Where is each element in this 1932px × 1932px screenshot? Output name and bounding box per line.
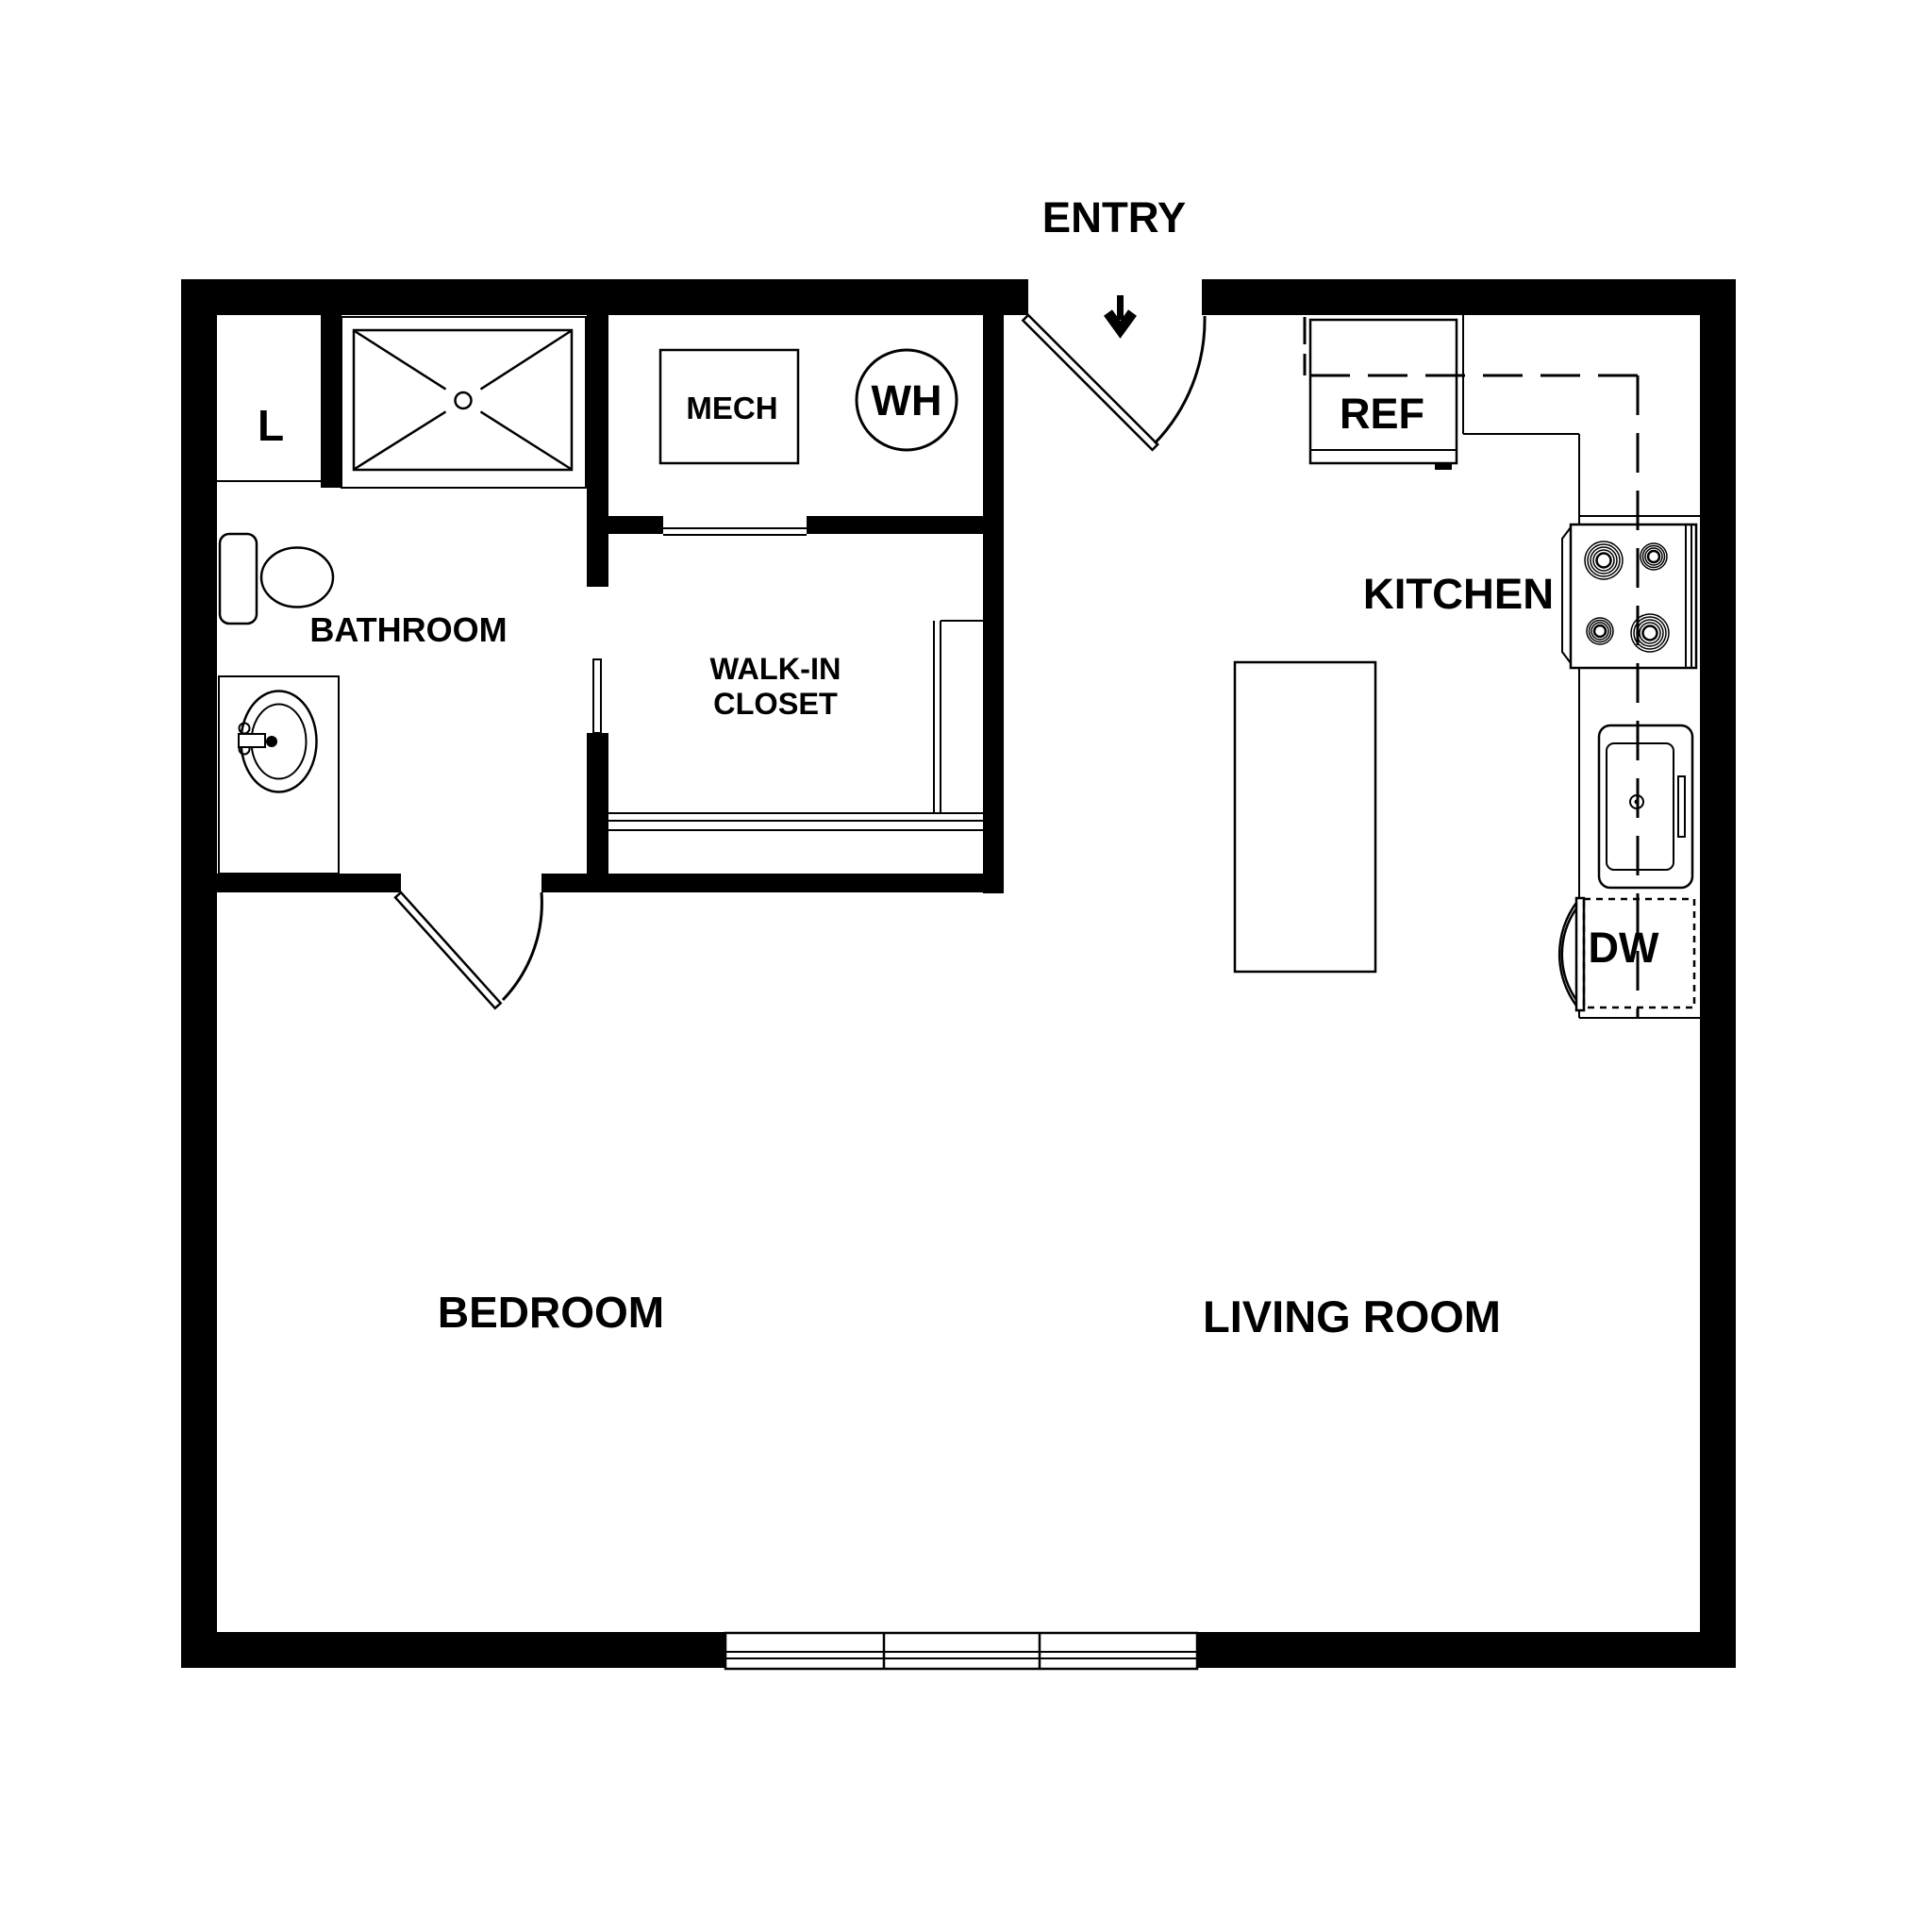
svg-text:ENTRY: ENTRY [1042,193,1187,241]
svg-text:KITCHEN: KITCHEN [1363,570,1554,618]
svg-text:BEDROOM: BEDROOM [438,1288,664,1337]
svg-text:LIVING ROOM: LIVING ROOM [1203,1291,1501,1341]
svg-text:DW: DW [1589,924,1659,972]
svg-text:MECH: MECH [686,391,777,425]
svg-text:CLOSET: CLOSET [713,687,838,721]
svg-text:WALK-IN: WALK-IN [710,652,841,686]
svg-text:WH: WH [872,376,942,425]
svg-text:L: L [258,401,284,450]
svg-text:REF: REF [1340,390,1424,438]
svg-text:BATHROOM: BATHROOM [309,610,507,649]
